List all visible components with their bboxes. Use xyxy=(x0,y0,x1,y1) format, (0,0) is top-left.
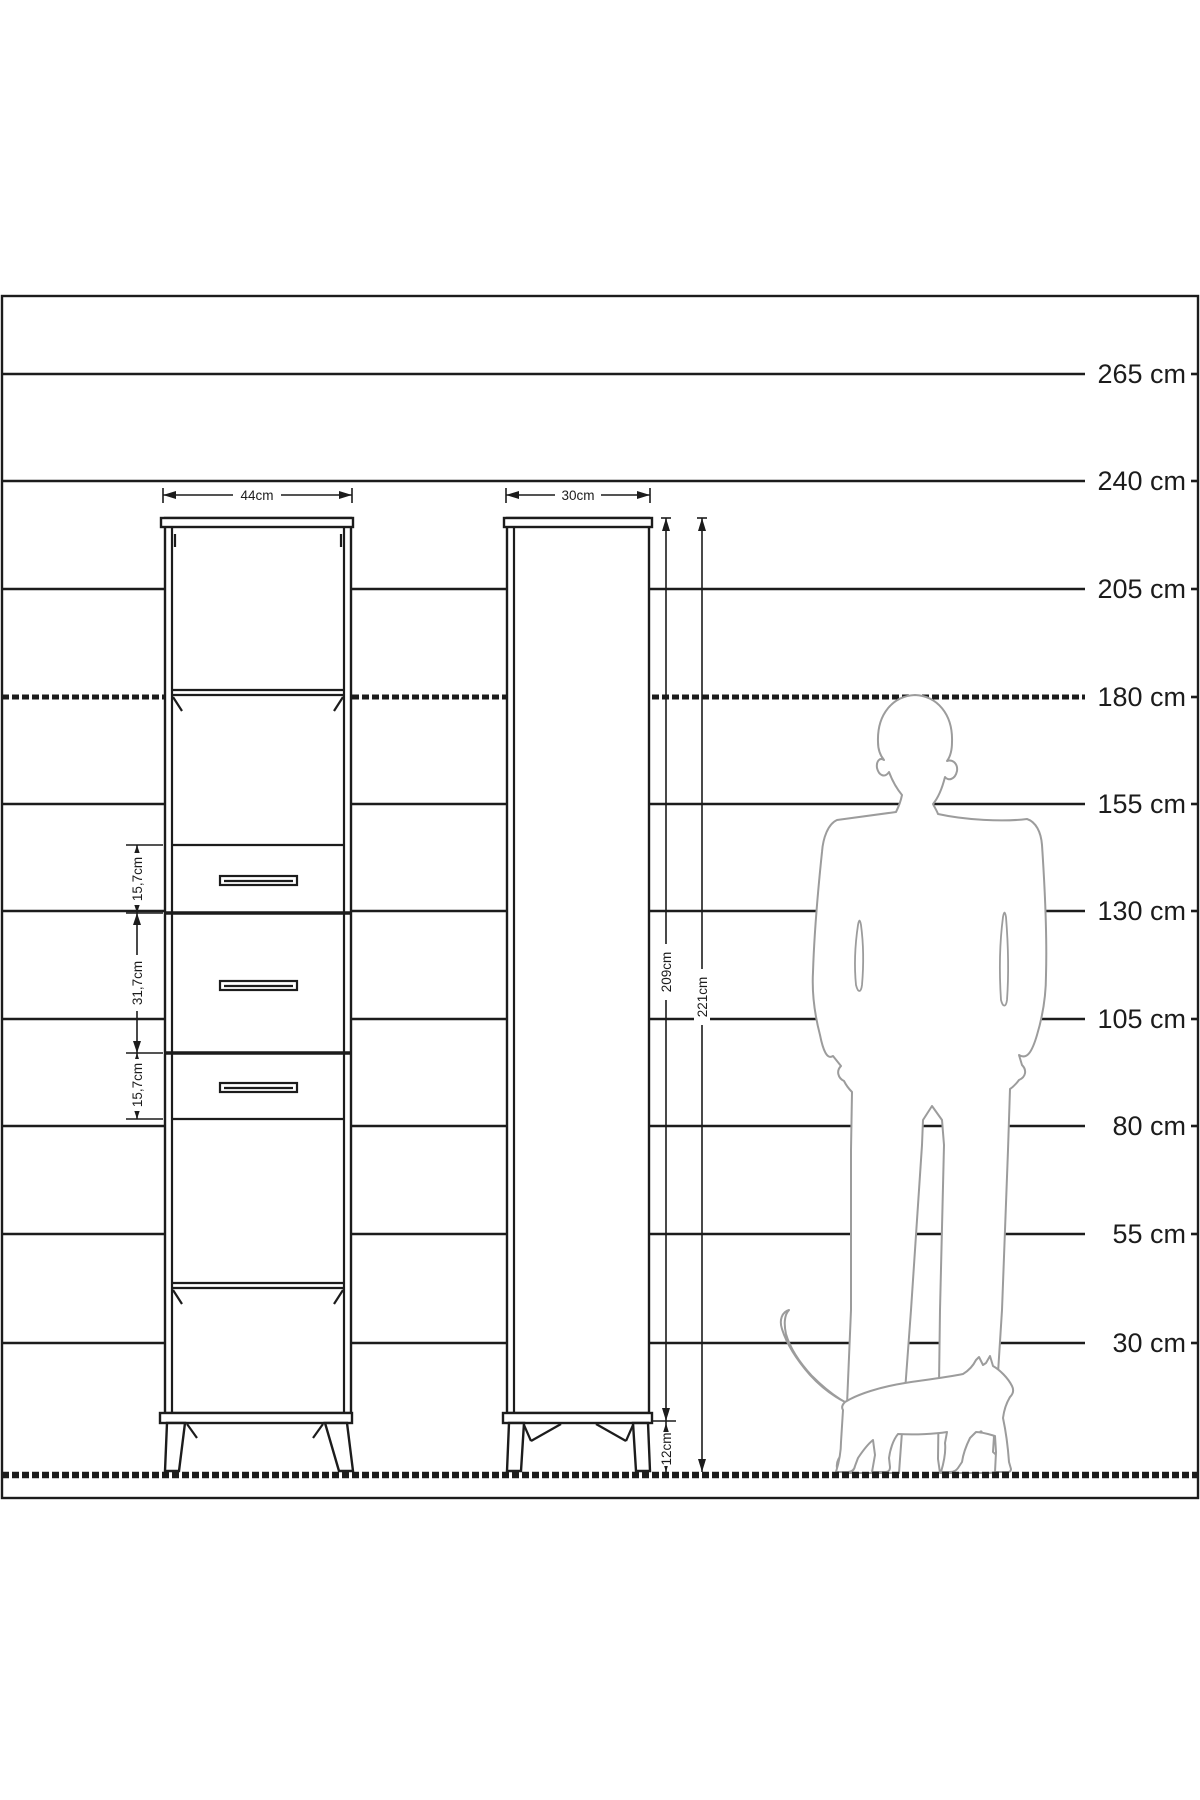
scale-label-105: 105 cm xyxy=(1097,1004,1186,1034)
side-leg-left xyxy=(507,1423,524,1471)
scale-label-180: 180 cm xyxy=(1097,682,1186,712)
leg-height-label: 12cm xyxy=(659,1432,674,1465)
cat-fur-dot xyxy=(979,1430,982,1433)
scale-label-30: 30 cm xyxy=(1112,1328,1186,1358)
side-cabinet-body xyxy=(507,518,649,1413)
total-height-label: 221cm xyxy=(695,977,710,1018)
front-view-cabinet xyxy=(160,518,353,1471)
scale-label-80: 80 cm xyxy=(1112,1111,1186,1141)
furniture-dimension-diagram: 265 cm 240 cm 205 cm 180 cm 155 cm 130 c… xyxy=(0,0,1200,1800)
drawer-dim-label-2: 31,7cm xyxy=(130,961,145,1005)
scale-label-240: 240 cm xyxy=(1097,466,1186,496)
side-view-cabinet xyxy=(503,518,652,1471)
front-cabinet-bottom-board xyxy=(160,1413,352,1423)
side-cabinet-bottom-board xyxy=(503,1413,652,1423)
drawer-dim-label-1: 15,7cm xyxy=(130,857,145,901)
man-jacket-right-slit xyxy=(1000,913,1008,1006)
front-width-label: 44cm xyxy=(240,488,273,503)
scale-label-205: 205 cm xyxy=(1097,574,1186,604)
body-height-label: 209cm xyxy=(659,952,674,993)
diagram-canvas: 265 cm 240 cm 205 cm 180 cm 155 cm 130 c… xyxy=(0,0,1200,1800)
side-cabinet-top-board xyxy=(504,518,652,527)
side-leg-right xyxy=(633,1423,650,1471)
drawer-dim-label-3: 15,7cm xyxy=(130,1063,145,1107)
scale-label-265: 265 cm xyxy=(1097,359,1186,389)
scale-label-155: 155 cm xyxy=(1097,789,1186,819)
front-cabinet-body xyxy=(165,518,351,1413)
scale-label-55: 55 cm xyxy=(1112,1219,1186,1249)
side-depth-label: 30cm xyxy=(561,488,594,503)
scale-label-130: 130 cm xyxy=(1097,896,1186,926)
front-cabinet-top-board xyxy=(161,518,353,527)
